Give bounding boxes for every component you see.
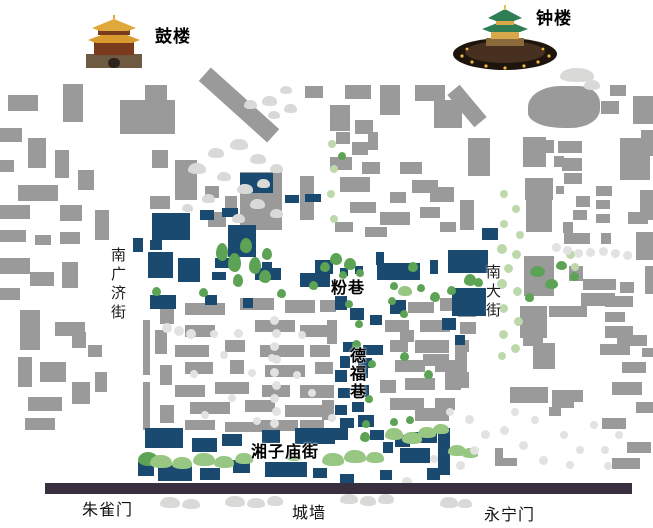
building (395, 360, 425, 372)
tree-faded-cloud-icon (182, 499, 200, 509)
building-renovated (442, 318, 456, 330)
tree-faded-icon (272, 407, 281, 416)
building (60, 232, 80, 244)
tree-faded-cloud-icon (230, 139, 248, 150)
tree-icon (390, 418, 398, 426)
tree-icon (262, 248, 272, 260)
tree-icon (430, 292, 440, 302)
tree-faded-icon (500, 426, 509, 435)
tree-faded-cloud-icon (267, 496, 283, 506)
building-renovated (145, 428, 183, 448)
building (563, 222, 573, 233)
shrub-icon (504, 264, 513, 273)
tree-faded-icon (456, 461, 465, 470)
building (330, 105, 350, 131)
tree-icon (259, 270, 271, 283)
shape-layer (0, 0, 653, 528)
building (225, 340, 245, 352)
tree-icon (388, 297, 396, 305)
shrub-icon (499, 330, 508, 339)
building-renovated (340, 418, 354, 428)
shrub-icon (327, 190, 335, 198)
building (120, 100, 175, 134)
tree-cloud-icon (344, 450, 366, 463)
tree-faded-cloud-icon (225, 496, 245, 507)
tree-cloud-icon (214, 456, 234, 468)
building (28, 138, 46, 168)
tree-faded-icon (511, 408, 519, 416)
building (315, 362, 333, 374)
shrub-icon (512, 250, 521, 259)
building (415, 85, 445, 101)
building (400, 162, 422, 174)
building (18, 357, 32, 387)
shrub-icon (513, 287, 522, 296)
building-renovated (178, 258, 200, 282)
building (528, 86, 600, 128)
building-renovated (200, 468, 220, 480)
building (335, 222, 353, 232)
building (546, 140, 554, 153)
building (0, 205, 30, 219)
tree-icon (249, 257, 261, 274)
building (0, 160, 14, 172)
tree-faded-cloud-icon (284, 104, 297, 113)
building (400, 330, 414, 342)
tree-icon (408, 262, 418, 272)
building (605, 312, 625, 322)
tree-faded-icon (272, 329, 281, 338)
building (510, 387, 548, 403)
wall-label-chengqiang: 城墙 (292, 499, 326, 523)
tree-faded-icon (298, 331, 306, 339)
tree-icon (309, 281, 318, 290)
building (40, 362, 66, 382)
building (636, 232, 653, 260)
building (8, 95, 38, 111)
building-renovated (482, 228, 498, 240)
building (72, 382, 90, 404)
building-renovated (335, 405, 347, 415)
building-renovated (205, 295, 217, 305)
tree-faded-icon (601, 446, 609, 454)
tree-faded-icon (481, 430, 490, 439)
building (645, 266, 653, 294)
tree-faded-cloud-icon (584, 80, 600, 90)
tree-icon (338, 152, 346, 160)
drum-tower-label: 鼓楼 (155, 22, 191, 47)
building (345, 85, 371, 99)
tree-cloud-icon (433, 424, 449, 434)
building (601, 233, 611, 244)
building (88, 345, 102, 357)
tree-cloud-icon (366, 452, 384, 463)
building-renovated (370, 315, 382, 325)
building-renovated (455, 335, 465, 345)
tree-faded-icon (566, 461, 574, 469)
tree-faded-cloud-icon (232, 214, 245, 223)
tree-faded-icon (430, 455, 438, 463)
tree-icon (406, 416, 414, 424)
tree-faded-cloud-icon (280, 86, 292, 94)
building (20, 310, 40, 350)
tree-icon (233, 274, 243, 287)
building (143, 382, 150, 430)
tree-faded-icon (210, 330, 218, 338)
tree-faded-cloud-icon (340, 494, 358, 504)
building (602, 418, 626, 429)
shrub-icon (571, 263, 579, 271)
building-renovated (383, 442, 393, 453)
tree-faded-cloud-icon (440, 497, 458, 508)
building (420, 207, 440, 218)
building-renovated (380, 470, 392, 480)
tree-faded-icon (270, 419, 279, 428)
building (633, 96, 653, 124)
building-renovated (133, 238, 143, 252)
building (155, 330, 167, 354)
tree-cloud-icon (193, 453, 215, 466)
building (564, 233, 590, 244)
building-renovated (243, 298, 253, 308)
building (583, 279, 616, 290)
building (445, 372, 469, 388)
building (365, 227, 387, 237)
shrub-icon (498, 352, 506, 360)
building (350, 202, 376, 213)
building (468, 138, 490, 176)
tree-icon (390, 282, 398, 290)
tree-cloud-icon (398, 286, 412, 296)
tree-icon (362, 420, 370, 428)
building (622, 362, 646, 373)
building (408, 302, 434, 313)
tree-faded-cloud-icon (257, 179, 270, 188)
building (605, 296, 633, 307)
street-label-xiangzimiaojie: 湘子庙街 (251, 438, 319, 462)
shrub-icon (330, 165, 338, 173)
building (430, 187, 454, 202)
building (143, 320, 150, 375)
building (612, 382, 642, 395)
building (368, 132, 378, 150)
building (568, 390, 583, 402)
building-renovated (285, 195, 299, 203)
tree-icon (345, 300, 353, 308)
building (63, 84, 83, 122)
tree-faded-cloud-icon (378, 494, 394, 504)
tree-faded-icon (248, 369, 256, 377)
tree-faded-icon (293, 371, 301, 379)
tree-icon (216, 243, 228, 261)
building (285, 405, 325, 417)
building (636, 402, 653, 413)
building (558, 141, 582, 153)
building (0, 128, 22, 142)
building (405, 378, 435, 390)
building (25, 418, 55, 430)
building (440, 222, 456, 232)
shrub-icon (516, 231, 524, 239)
tree-icon (570, 272, 579, 281)
tree-icon (525, 293, 534, 302)
tree-faded-cloud-icon (217, 172, 231, 181)
building-renovated (370, 430, 384, 440)
tree-faded-icon (539, 456, 548, 465)
building (628, 212, 648, 224)
building (576, 196, 590, 207)
drum-tower-image (80, 14, 148, 72)
building-renovated (150, 240, 162, 250)
tree-faded-cloud-icon (244, 100, 257, 109)
building (523, 137, 546, 167)
tree-icon (360, 432, 370, 442)
building-renovated (192, 438, 217, 452)
tree-icon (368, 360, 376, 368)
building (320, 300, 336, 312)
street-label-fenxiang: 粉巷 (331, 274, 365, 298)
building (627, 442, 651, 453)
shrub-icon (512, 205, 520, 213)
tree-faded-icon (268, 354, 276, 362)
tree-faded-cloud-icon (270, 209, 283, 218)
tree-faded-icon (270, 368, 279, 377)
building (260, 345, 304, 357)
tree-cloud-icon (322, 453, 344, 466)
building (60, 205, 82, 221)
building (0, 258, 30, 274)
building (556, 186, 564, 194)
building (28, 397, 62, 411)
building (596, 200, 610, 209)
tree-cloud-icon (172, 457, 192, 469)
building (327, 320, 337, 344)
building (190, 402, 230, 414)
building (533, 343, 555, 369)
street-label-defuxiang: 德福巷 (343, 347, 367, 401)
building (175, 345, 209, 357)
building (160, 365, 172, 385)
building (95, 210, 109, 240)
building (423, 354, 449, 366)
tree-icon (400, 352, 409, 361)
tree-faded-icon (201, 411, 209, 419)
tree-faded-icon (623, 251, 632, 260)
shrub-icon (500, 190, 508, 198)
building (0, 288, 20, 300)
tree-faded-icon (519, 441, 528, 450)
tree-faded-icon (604, 462, 612, 470)
tree-faded-cloud-icon (250, 199, 265, 209)
tree-icon (545, 279, 558, 289)
building (150, 196, 170, 209)
tree-icon (417, 284, 425, 292)
tree-faded-icon (220, 351, 228, 359)
building (380, 85, 400, 115)
building (612, 458, 640, 469)
tree-faded-cloud-icon (247, 498, 265, 508)
shrub-icon (511, 344, 520, 353)
tree-faded-icon (270, 316, 279, 325)
tree-faded-cloud-icon (182, 204, 193, 212)
building (525, 178, 553, 200)
tree-faded-cloud-icon (458, 499, 472, 508)
tree-faded-icon (446, 408, 454, 416)
building (175, 385, 205, 397)
shrub-icon (514, 317, 523, 326)
building (78, 170, 94, 190)
building (30, 272, 54, 286)
building (380, 212, 410, 225)
tree-icon (330, 253, 342, 265)
tree-faded-icon (574, 249, 583, 258)
building (336, 132, 350, 144)
building (340, 177, 370, 192)
building (362, 162, 380, 174)
building (380, 380, 396, 393)
building-renovated (452, 288, 486, 316)
tree-icon (447, 286, 456, 295)
building (230, 360, 244, 374)
building (95, 372, 107, 392)
tree-faded-icon (611, 249, 620, 258)
building-renovated (313, 468, 327, 478)
building (434, 100, 462, 128)
building (549, 306, 587, 317)
tree-faded-cloud-icon (160, 497, 180, 508)
building (562, 158, 582, 171)
building-renovated (212, 272, 226, 280)
building (596, 214, 610, 223)
tree-faded-cloud-icon (208, 148, 224, 158)
tree-faded-icon (253, 417, 261, 425)
tree-icon (320, 262, 330, 272)
building (55, 150, 69, 178)
building-renovated (265, 462, 307, 477)
building (610, 85, 626, 96)
tree-faded-icon (270, 342, 279, 351)
building (18, 185, 58, 201)
building (642, 348, 653, 357)
tree-icon (355, 320, 363, 328)
building-renovated (427, 468, 440, 480)
tree-faded-cloud-icon (202, 194, 215, 203)
tree-icon (199, 288, 208, 297)
tree-faded-cloud-icon (250, 154, 266, 164)
building-renovated (305, 194, 321, 202)
tree-faded-icon (174, 326, 184, 336)
shrub-icon (500, 220, 508, 228)
tree-faded-icon (190, 370, 198, 378)
building (415, 408, 449, 421)
building (620, 282, 634, 293)
tree-faded-icon (576, 446, 584, 454)
city-wall-bar (45, 483, 632, 494)
tree-icon (530, 266, 545, 277)
gate-label-zhuquemen: 朱雀门 (82, 496, 133, 520)
building (526, 200, 552, 232)
building (617, 335, 647, 346)
building (160, 405, 174, 423)
tree-icon (152, 287, 161, 296)
building (0, 230, 26, 242)
building (185, 420, 215, 430)
building-renovated (200, 210, 214, 220)
building (460, 322, 476, 334)
building (152, 150, 168, 168)
tree-faded-icon (615, 431, 623, 439)
building (352, 142, 368, 155)
tree-faded-cloud-icon (268, 111, 280, 119)
tree-faded-icon (563, 246, 572, 255)
tree-faded-icon (186, 329, 196, 339)
tree-icon (424, 370, 433, 379)
tree-faded-icon (162, 323, 172, 333)
building (300, 385, 334, 398)
tree-icon (240, 238, 252, 253)
tree-faded-cloud-icon (270, 164, 283, 173)
building (601, 101, 619, 114)
street-label-nandajie: 南大街 (482, 264, 503, 321)
tree-icon (344, 258, 356, 270)
building (564, 173, 582, 184)
tree-faded-icon (228, 394, 236, 402)
bell-tower-label: 钟楼 (536, 4, 572, 29)
building (573, 210, 587, 220)
tree-faded-icon (470, 446, 479, 455)
tree-faded-icon (590, 421, 598, 429)
building (596, 186, 612, 196)
tree-cloud-icon (385, 428, 403, 440)
building-renovated (148, 252, 173, 278)
tree-icon (400, 310, 408, 318)
building-renovated (430, 260, 438, 274)
tree-faded-icon (560, 431, 568, 439)
building (390, 192, 406, 203)
tree-faded-icon (308, 389, 316, 397)
tree-faded-cloud-icon (237, 184, 253, 194)
building (641, 130, 653, 156)
tree-faded-icon (465, 415, 474, 424)
building (495, 458, 517, 466)
shrub-icon (330, 215, 338, 223)
tree-faded-cloud-icon (188, 163, 206, 174)
tree-faded-icon (270, 394, 279, 403)
shrub-icon (497, 244, 507, 254)
tree-faded-cloud-icon (360, 496, 376, 506)
building (460, 200, 474, 230)
building-renovated (222, 434, 242, 446)
street-label-nanguangjijie: 南广济街 (107, 247, 128, 323)
building (215, 382, 249, 394)
building-renovated (152, 213, 190, 240)
building-renovated (350, 308, 364, 320)
gate-label-yongningmen: 永宁门 (484, 501, 535, 525)
map-canvas: 鼓楼 钟楼 南广济街 粉巷 南大街 德福巷 湘子庙街 朱雀门 城墙 永宁门 (0, 0, 653, 528)
building-renovated (150, 295, 176, 309)
tree-faded-icon (531, 416, 539, 424)
tree-faded-icon (586, 248, 595, 257)
tree-icon (556, 261, 567, 270)
tree-faded-icon (599, 247, 608, 256)
building-renovated (352, 402, 364, 412)
building (35, 235, 51, 245)
building-renovated (400, 448, 430, 463)
tree-faded-cloud-icon (262, 96, 277, 106)
building (549, 407, 561, 416)
tree-icon (228, 253, 241, 272)
tree-faded-icon (272, 381, 281, 390)
